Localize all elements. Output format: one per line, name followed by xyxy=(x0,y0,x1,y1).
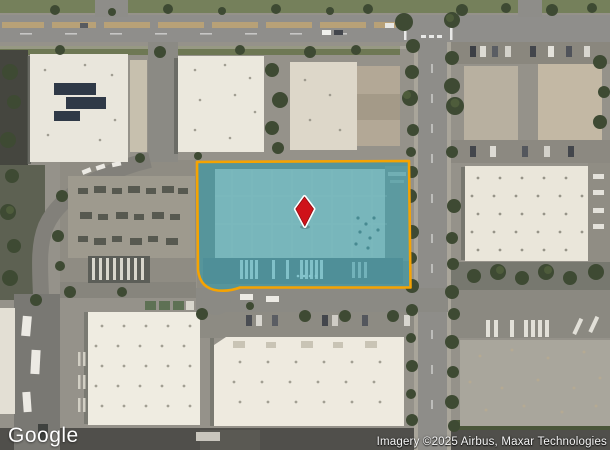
imagery-attribution: Imagery ©2025 Airbus, Maxar Technologies xyxy=(377,436,607,448)
google-logo[interactable]: Google xyxy=(8,424,79,448)
map-viewport[interactable]: Google Imagery ©2025 Airbus, Maxar Techn… xyxy=(0,0,610,450)
satellite-imagery xyxy=(0,0,610,450)
